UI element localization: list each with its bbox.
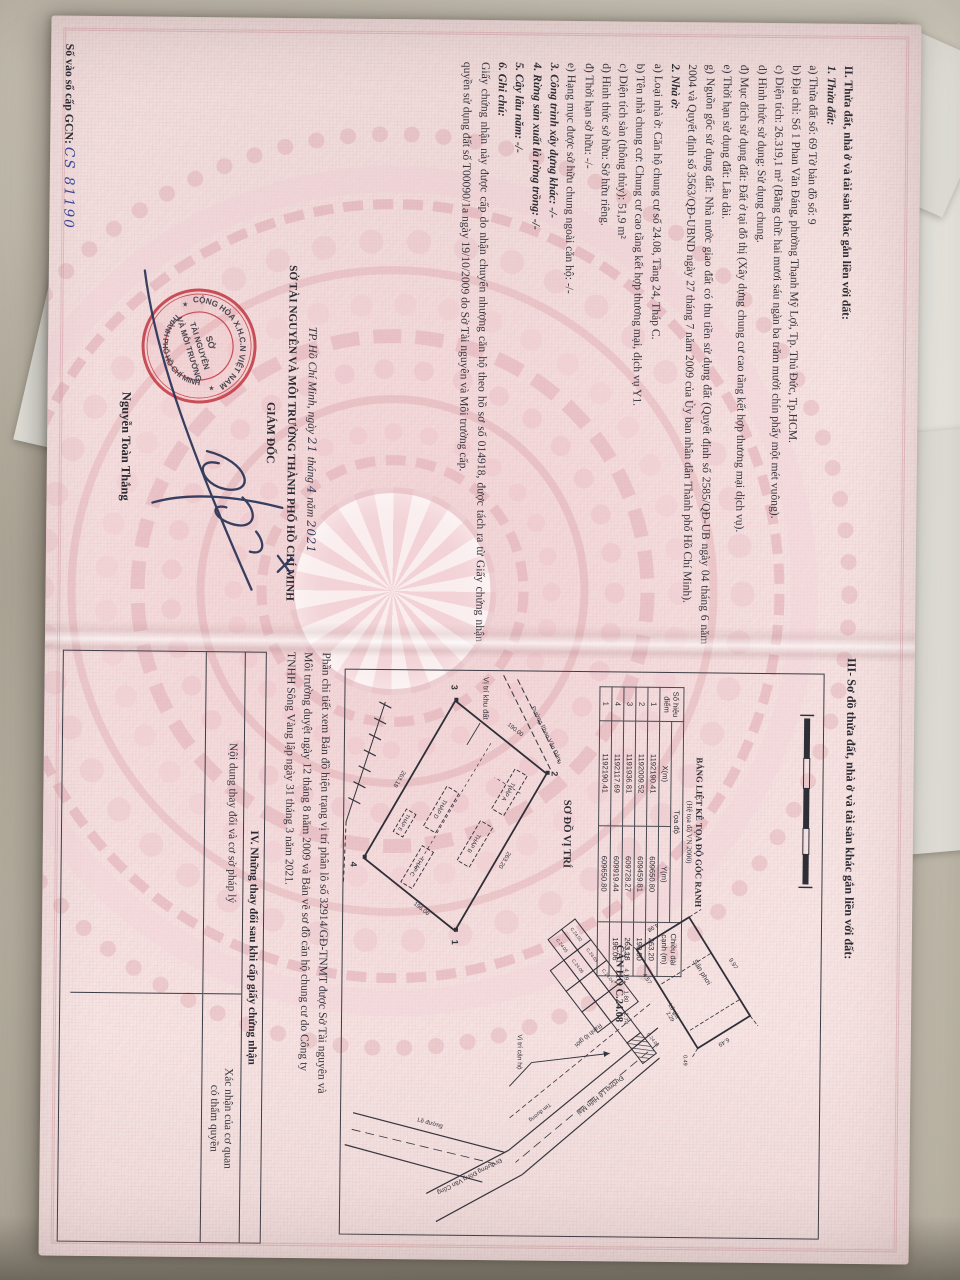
signer-name: Nguyễn Toàn Thắng [117,336,134,556]
book-entry-label: Số vào sổ cấp GCN: [62,44,77,144]
col-authority-line-1: Xác nhận của cơ quan [221,1068,234,1169]
edge-length: 190.00 [506,722,525,739]
page-section-2: II. Thửa đất, nhà ở và tài sản khác gắn … [45,15,921,644]
balcony-label: Sân phơi [691,959,712,987]
handwritten-day: 21 [305,437,319,454]
corner-label: 4 [349,862,359,867]
cell-x: 1191936.81 [623,721,636,826]
col-point: Số hiệu [672,692,681,718]
book-entry-number: Số vào sổ cấp GCN: CS 81190 [60,44,78,230]
dim-label: 6.49 [716,1036,730,1048]
handwritten-month: 4 [305,486,319,495]
cell-point: 1 [648,687,660,721]
axis-label: Tim đường [527,1101,551,1122]
section-4-body-right [68,993,203,1242]
edge-length: 263.18 [391,769,406,788]
page-section-3-4: III- Sơ đồ thửa đất, nhà ở và tài sản kh… [39,635,915,1264]
col-authority-confirm: Xác nhận của cơ quan có thẩm quyền [201,994,242,1242]
unit-label: C.24.04 [601,968,615,984]
cell-x: 1192190.41 [599,721,612,826]
section-4-header-row: Nội dung thay đổi và cơ sở pháp lý Xác n… [200,652,245,1242]
floor-streets-plan: C.24.02 C.24.03 C.24.04 C.24.05 C.24.06 … [342,905,661,1236]
dim-label: 0.49 [682,1055,688,1066]
text-line: g) Nguồn gốc sử dụng đất: Nhà nước giao … [678,64,719,644]
boundary-label: Ranh lộ giới [573,1022,603,1049]
unit-label: C.24.03 [585,947,599,963]
handwritten-year: 2021 [304,520,318,554]
cell-point: 1 [600,687,612,721]
unit-pointer-label: Vị trí căn hộ [516,1034,523,1070]
detail-note: Phần chi tiết xem Bản đồ hiện trạng vị t… [276,652,335,1245]
cell-x: 1192190.41 [647,721,660,826]
book-entry-value-handwritten: CS 81190 [60,147,77,230]
col-authority-line-2: có thẩm quyền [208,1085,221,1152]
date-prefix: TP. Hồ Chí Minh, ngày [305,327,319,434]
site-location-label: Vị trí khu đất [481,677,490,721]
cell-x: 1192117.69 [611,721,624,826]
curb-label: Lề đường [416,1117,443,1129]
section-4-body-left [70,651,206,995]
site-plan-title: SƠ ĐỒ VỊ TRÍ [560,764,572,904]
corner-label: 2 [550,771,560,776]
unit-label: C.24.02 [569,927,583,943]
cell-point: 2 [636,687,648,721]
section-4-table: IV. Những thay đổi sau khi cấp giấy chứn… [57,650,267,1244]
date-month-word: tháng [305,457,318,484]
dim-label: 9.97 [727,958,739,972]
director-signature [111,254,307,608]
tower-label: THÁP E [396,813,412,833]
date-year-word: năm [304,497,317,517]
certificate-spread: II. Thửa đất, nhà ở và tài sản khác gắn … [39,15,922,1264]
edge-length: 263.20 [496,850,511,869]
notes-text: Giấy chứng nhận này được cấp do nhận chu… [453,62,494,642]
road1-label: Đường Lê Hiến Mai [575,1074,626,1118]
section-2-text: II. Thửa đất, nhà ở và tài sản khác gắn … [453,62,857,646]
col-change-content: Nội dung thay đổi và cơ sở pháp lý [203,652,245,995]
corner-label: 3 [449,685,459,690]
cell-x: 1192009.52 [635,721,648,826]
col-point-2: điểm [663,696,672,713]
road-label: Đường Phan Văn Đáng [530,706,562,765]
cell-point: 4 [612,687,624,721]
diagram-frame: BẢNG LIỆT KÊ TỌA ĐỘ GÓC RANH (Hệ tọa độ … [339,669,825,1240]
cell-point: 3 [624,687,636,721]
scale-bar [797,714,815,889]
section-4-body [68,651,206,1242]
certificate-photo: II. Thửa đất, nhà ở và tài sản khác gắn … [0,0,960,1280]
section-3-heading: III- Sơ đồ thửa đất, nhà ở và tài sản kh… [838,658,859,1254]
col-x: X(m) [659,721,672,826]
